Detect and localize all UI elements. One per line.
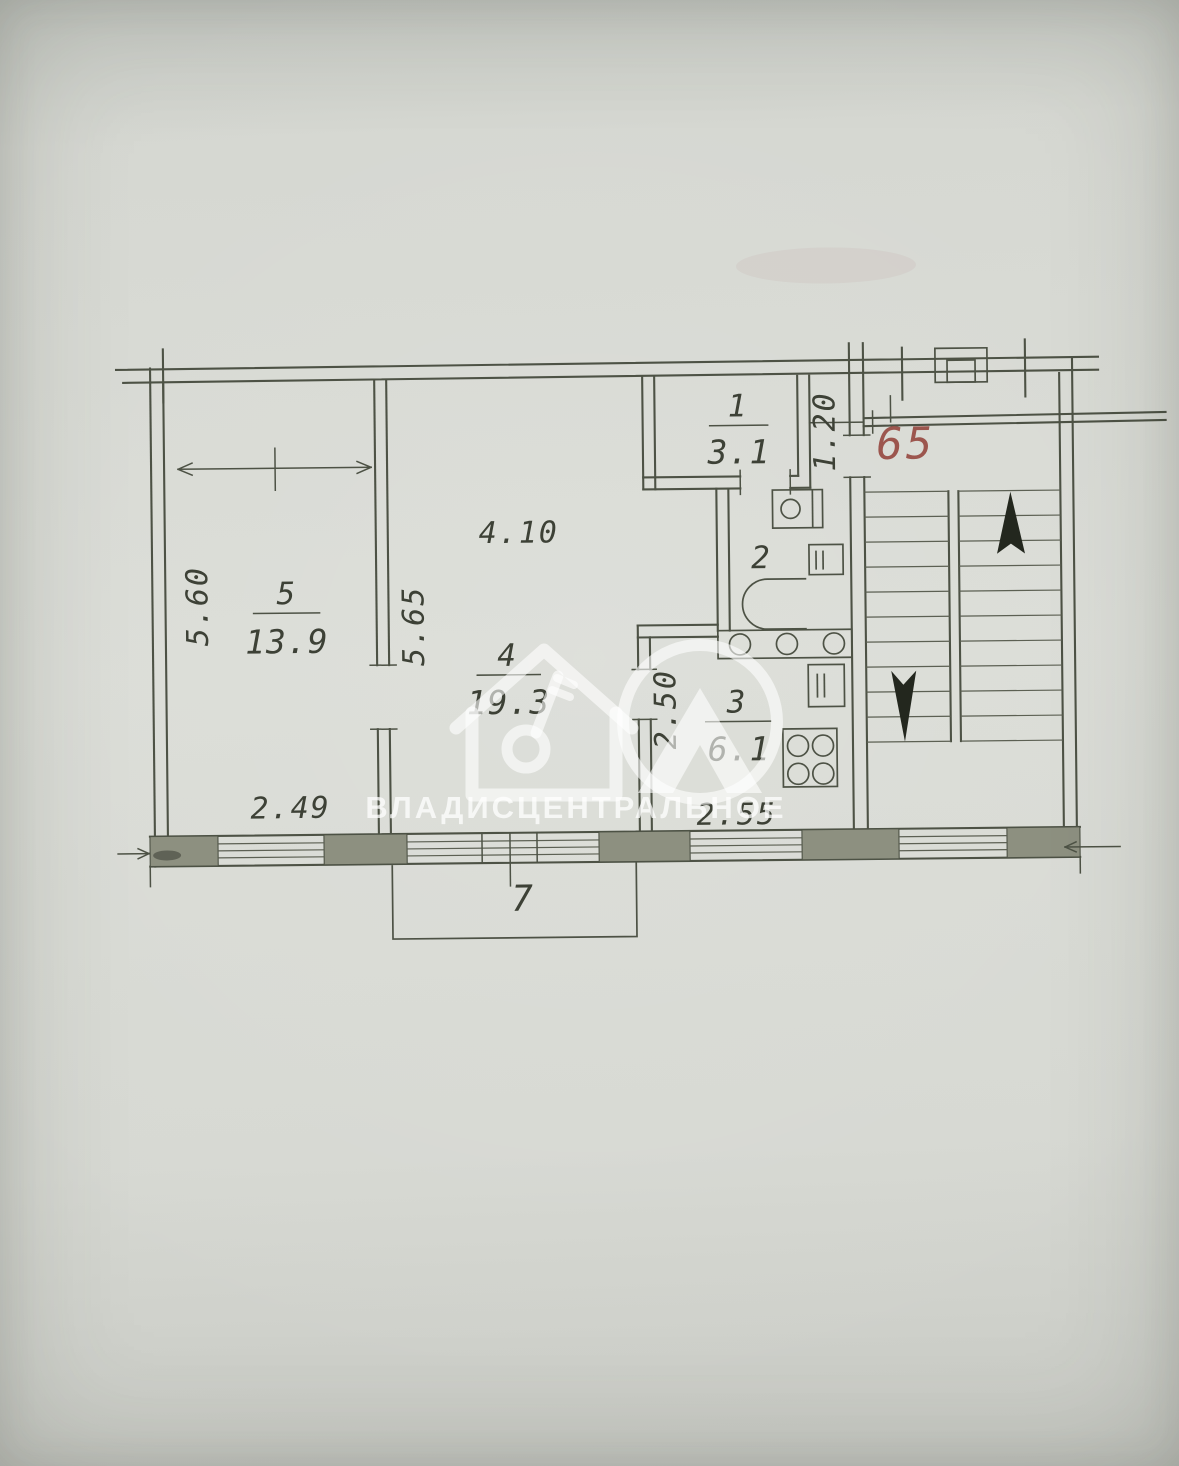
radiator-icon (808, 664, 844, 706)
room-5-label: 5 13.9 (244, 576, 328, 662)
dim-room5-width: 2.49 (250, 791, 331, 827)
floorplan-photo: 5.60 2.49 5.65 4.10 1.20 2.50 2.55 5 13.… (0, 0, 1179, 1466)
floor-plan: 5.60 2.49 5.65 4.10 1.20 2.50 2.55 5 13.… (0, 0, 1179, 1466)
stairs-down-arrow-icon (891, 671, 917, 742)
room-1-label: 1 3.1 (706, 388, 770, 472)
window-room4-balcony-door (407, 832, 600, 887)
room-2-number: 2 (751, 540, 771, 576)
room-7-number: 7 (511, 879, 534, 920)
room-3-number: 3 (726, 684, 747, 720)
room-1-number: 1 (727, 388, 747, 424)
watermark-house-key-icon (456, 650, 632, 795)
window-stairwell (899, 836, 1007, 851)
stairs-up-arrow-icon (996, 491, 1025, 553)
watermark-text: ВЛАДИСЦЕНТРАЛЬНОЕ (365, 790, 786, 825)
room-5-number: 5 (276, 576, 296, 612)
exterior-bottom-wall (118, 826, 1121, 889)
room-1-area: 3.1 (706, 432, 770, 472)
dim-hall-width: 1.20 (807, 391, 843, 472)
staircase (864, 490, 1063, 742)
stove-icon (783, 728, 838, 787)
dim-room4-height: 5.65 (396, 586, 432, 667)
dim-line-room5 (178, 447, 371, 491)
dim-room4-width: 4.10 (478, 515, 559, 551)
watermark: ВЛАДИСЦЕНТРАЛЬНОЕ (365, 645, 786, 825)
dim-room5-height: 5.60 (180, 566, 216, 647)
toilet-icon (809, 544, 843, 574)
sink-icon (772, 490, 822, 529)
room-5-area: 13.9 (245, 622, 329, 662)
window-room5 (218, 843, 324, 858)
stamp-bleed (736, 247, 916, 285)
bathtub-icon (742, 579, 807, 630)
vent-shaft-icon (935, 348, 987, 383)
apartment-number: 65 (876, 418, 936, 470)
window-kitchen (690, 838, 802, 853)
